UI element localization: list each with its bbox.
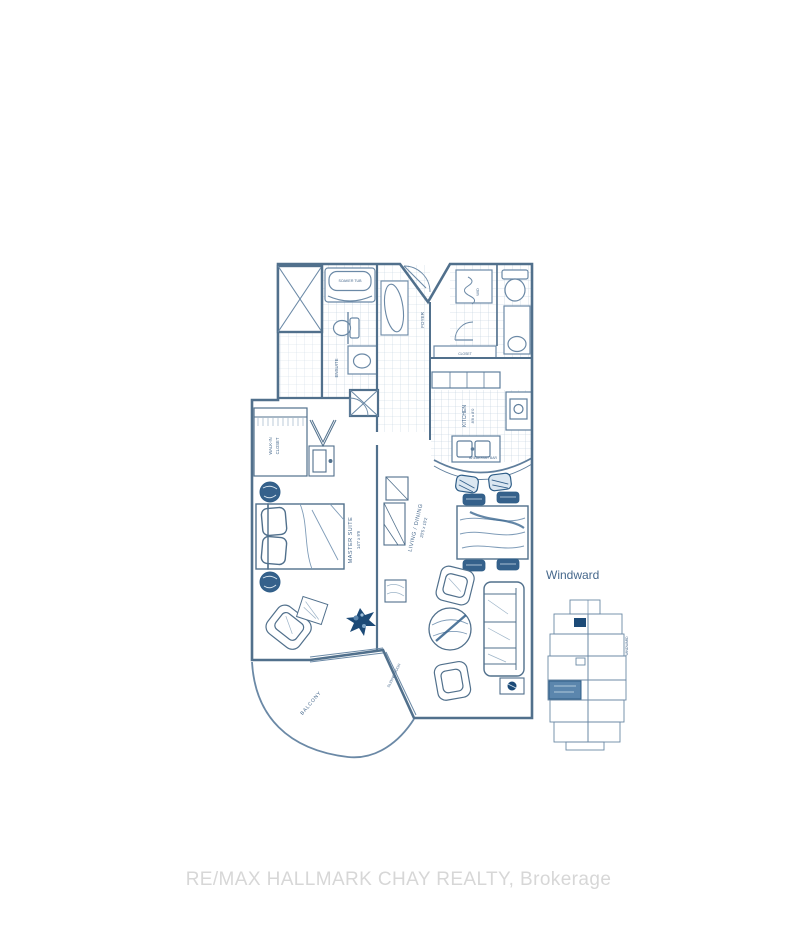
balcony-label: BALCONY	[299, 690, 323, 716]
key-plan-side-note: WINDWARD	[625, 636, 629, 656]
sink-icon	[348, 346, 377, 374]
bed	[256, 504, 344, 569]
sofa	[484, 582, 524, 676]
balcony-railing	[252, 662, 414, 757]
breakfast-bar-label: BREAKFAST BAR	[469, 456, 497, 460]
washer-dryer-icon	[456, 270, 492, 304]
floorplan-drawing: MASTER SUITE 14'7 x 9'9 LIVING / DINING …	[0, 0, 797, 940]
walk-in-closet-label2: CLOSET	[275, 437, 280, 454]
key-plan: WINDWARD	[548, 600, 629, 750]
bar-stool	[455, 475, 479, 494]
double-door-icon	[310, 420, 336, 446]
floorplan-page: MASTER SUITE 14'7 x 9'9 LIVING / DINING …	[0, 0, 797, 940]
hall-closet-label: CLOSET	[458, 352, 472, 356]
armchair	[434, 564, 475, 606]
building-title: Windward	[546, 568, 599, 582]
bathtub-icon	[325, 268, 375, 302]
plant-icon	[346, 608, 376, 636]
soaker-tub-label: SOAKER TUB	[338, 279, 362, 283]
dresser	[309, 446, 334, 476]
brokerage-watermark: RE/MAX HALLMARK CHAY REALTY, Brokerage	[186, 869, 612, 891]
dining-area	[457, 492, 528, 571]
sofa-end-table	[500, 678, 524, 694]
oven-counter	[506, 392, 532, 430]
walk-in-closet-label: WALK-IN	[268, 437, 273, 454]
highlighted-unit	[549, 681, 581, 699]
master-suite-label: MASTER SUITE	[348, 517, 354, 564]
tv-unit	[384, 477, 408, 602]
walk-in-closet	[254, 408, 307, 476]
pillow	[261, 507, 287, 536]
armchair	[433, 660, 472, 701]
kitchen-dims: 8'8 x 8'0	[470, 408, 475, 423]
nightstand-lamp	[260, 572, 280, 592]
elevator-core	[574, 618, 586, 627]
blanket-folds	[300, 504, 344, 569]
nightstand-lamp	[260, 482, 280, 502]
coffee-table	[429, 608, 471, 650]
ensuite-label: ENSUITE	[334, 358, 339, 377]
foyer-label: FOYER	[420, 311, 425, 328]
bar-stool	[488, 473, 512, 492]
vanity-sink-icon	[504, 306, 530, 354]
upper-counter	[432, 372, 500, 388]
laundry-label: W/D	[475, 288, 480, 296]
master-suite-dims: 14'7 x 9'9	[356, 530, 361, 549]
pillow	[261, 536, 287, 565]
kitchen-label: KITCHEN	[462, 405, 468, 427]
balcony	[252, 662, 414, 757]
